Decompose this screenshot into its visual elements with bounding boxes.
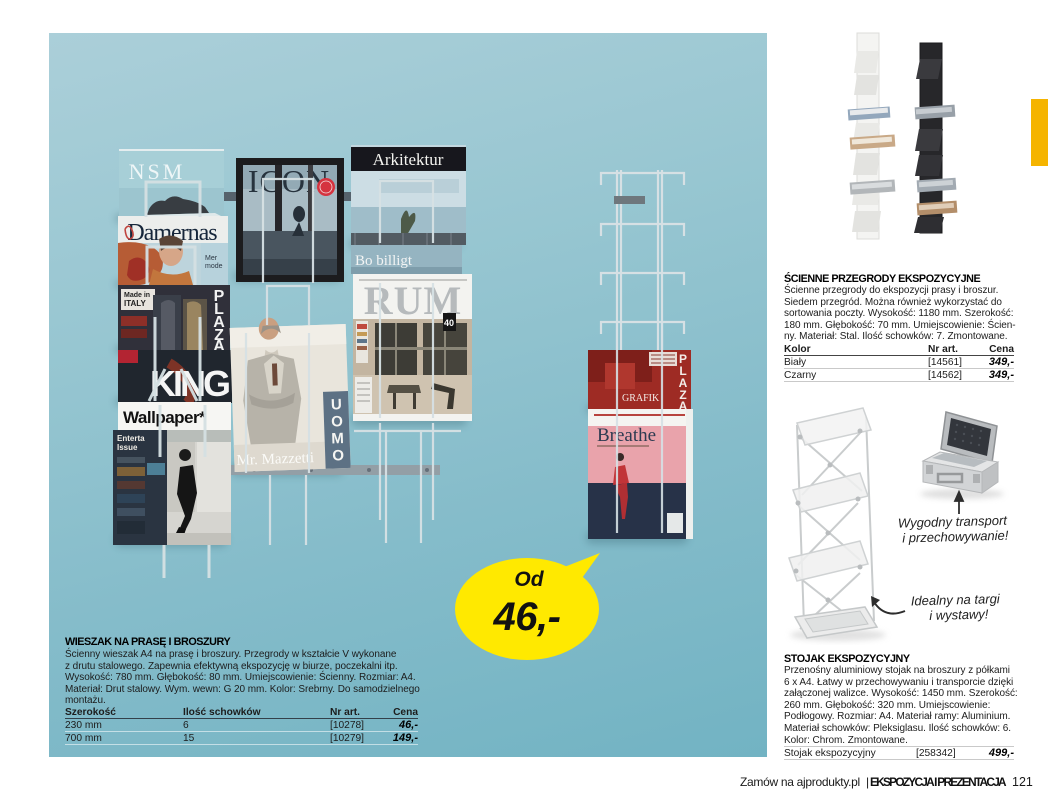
svg-text:M: M	[331, 430, 344, 447]
svg-text:Bo billigt: Bo billigt	[355, 253, 413, 269]
svg-text:O: O	[332, 447, 345, 464]
svg-text:Mer: Mer	[205, 255, 218, 262]
svg-text:Issue: Issue	[117, 443, 138, 452]
svg-text:GRAFIK: GRAFIK	[622, 393, 660, 404]
svg-text:40: 40	[444, 318, 454, 328]
svg-text:Arkitektur: Arkitektur	[373, 150, 444, 169]
svg-text:Mr. Mazzetti: Mr. Mazzetti	[236, 450, 314, 469]
svg-text:NSM: NSM	[129, 159, 186, 184]
svg-text:Od: Od	[514, 568, 544, 591]
svg-text:Breathe: Breathe	[597, 425, 656, 446]
svg-text:mode: mode	[205, 263, 223, 270]
svg-text:ITALY: ITALY	[124, 299, 146, 308]
svg-text:Enterta: Enterta	[117, 434, 145, 443]
svg-text:46,-: 46,-	[493, 595, 561, 639]
svg-text:U: U	[331, 396, 342, 413]
svg-text:O: O	[331, 413, 344, 430]
svg-text:Wallpaper*: Wallpaper*	[123, 408, 206, 427]
svg-text:Made in: Made in	[124, 292, 150, 299]
svg-text:ICON: ICON	[248, 163, 330, 199]
